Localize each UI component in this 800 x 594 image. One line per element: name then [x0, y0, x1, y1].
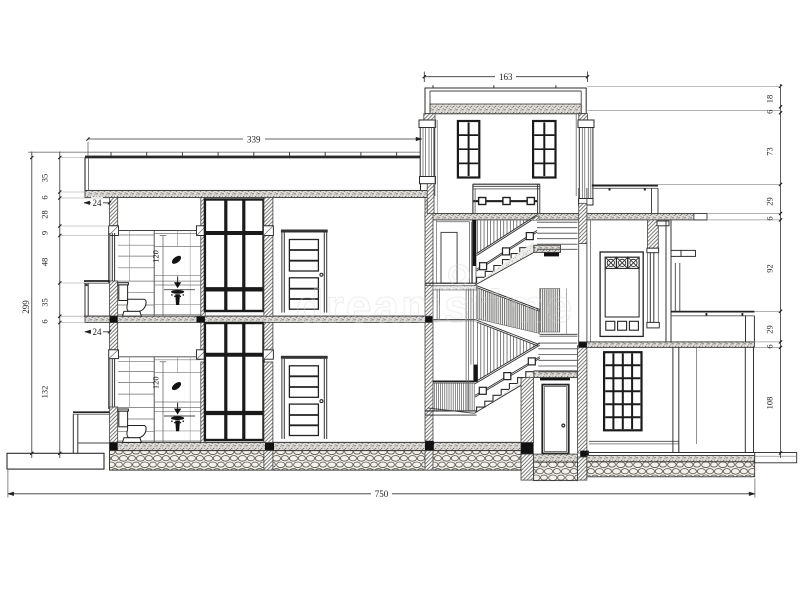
svg-text:163: 163	[499, 72, 513, 82]
svg-text:92: 92	[765, 264, 775, 273]
svg-text:48: 48	[40, 258, 50, 267]
svg-text:73: 73	[765, 147, 775, 156]
svg-text:35: 35	[40, 174, 50, 183]
svg-text:6: 6	[765, 110, 775, 114]
svg-text:29: 29	[765, 325, 775, 334]
svg-text:9: 9	[40, 231, 50, 235]
svg-text:6: 6	[40, 319, 50, 323]
svg-text:6: 6	[40, 195, 50, 199]
svg-text:339: 339	[247, 134, 261, 144]
svg-text:6: 6	[765, 344, 775, 348]
svg-text:24: 24	[93, 327, 103, 337]
svg-text:18: 18	[765, 95, 775, 104]
svg-text:24: 24	[93, 198, 103, 208]
svg-text:120: 120	[151, 376, 161, 389]
svg-text:108: 108	[765, 397, 775, 410]
svg-text:299: 299	[21, 300, 31, 314]
svg-text:750: 750	[375, 489, 389, 499]
svg-text:29: 29	[765, 197, 775, 206]
svg-text:120: 120	[151, 250, 161, 263]
svg-text:35: 35	[40, 298, 50, 307]
svg-text:6: 6	[765, 216, 775, 220]
svg-text:28: 28	[40, 210, 50, 219]
svg-text:132: 132	[40, 386, 50, 399]
svg-text:dreamstime: dreamstime	[296, 280, 574, 332]
